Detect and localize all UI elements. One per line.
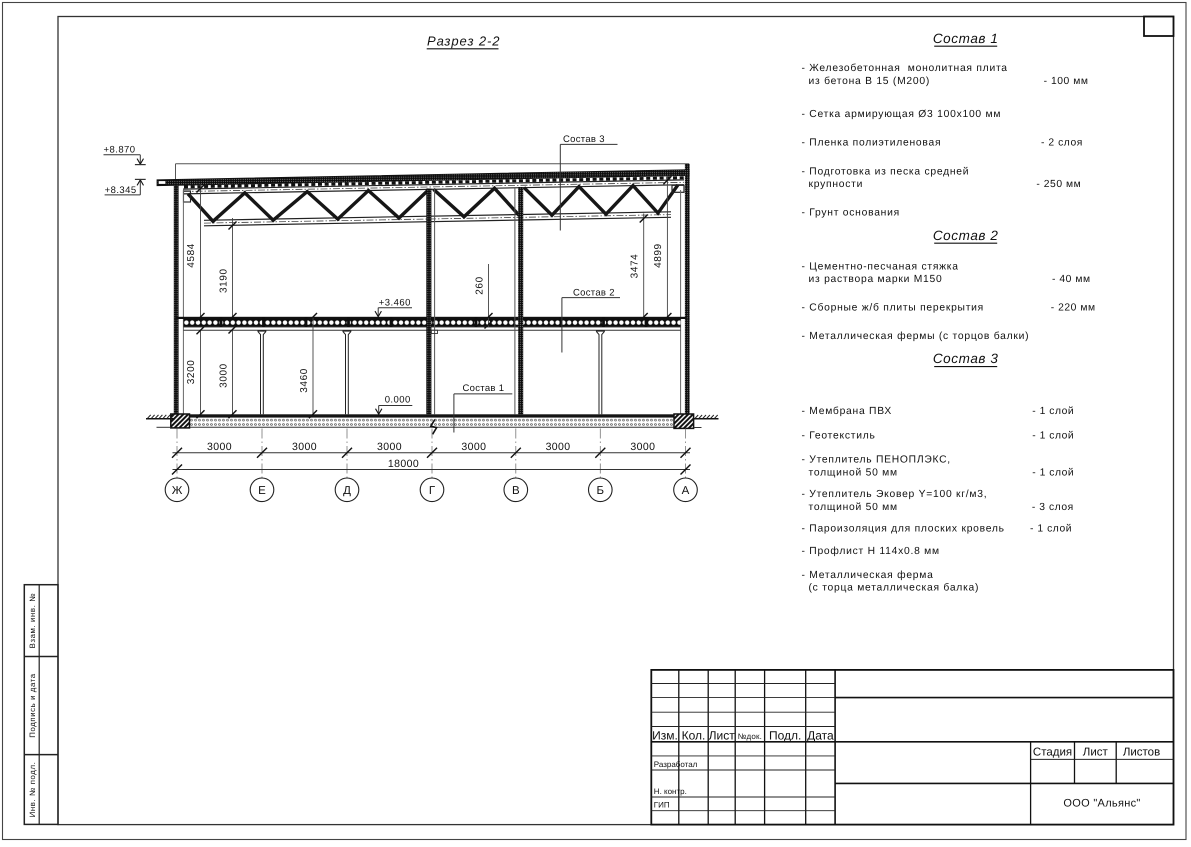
svg-text:0.000: 0.000 xyxy=(385,395,411,406)
svg-text:Кол.: Кол. xyxy=(682,728,706,742)
svg-text:Изм.: Изм. xyxy=(652,728,678,742)
svg-text:Разрез 2-2: Разрез 2-2 xyxy=(427,34,500,49)
svg-text:крупности: крупности xyxy=(809,179,864,190)
svg-text:Лист: Лист xyxy=(709,728,736,742)
svg-text:- 100 мм: - 100 мм xyxy=(1044,76,1089,87)
svg-text:Состав 1: Состав 1 xyxy=(463,383,505,394)
svg-text:- Сборные ж/б плиты перекрытия: - Сборные ж/б плиты перекрытия xyxy=(802,303,985,314)
svg-text:Состав 1: Состав 1 xyxy=(933,31,999,46)
svg-text:+3.460: +3.460 xyxy=(379,298,411,309)
svg-text:18000: 18000 xyxy=(388,458,419,470)
svg-text:3000: 3000 xyxy=(461,441,486,453)
svg-text:- Металлическая фермы (с торцо: - Металлическая фермы (с торцов балки) xyxy=(802,331,1030,342)
svg-text:3000: 3000 xyxy=(546,441,571,453)
svg-text:Инв. № подл.: Инв. № подл. xyxy=(28,762,37,818)
svg-text:3460: 3460 xyxy=(299,368,310,393)
svg-text:- Утеплитель Эковер Y=100 кг/м: - Утеплитель Эковер Y=100 кг/м3, xyxy=(802,489,988,500)
svg-text:А: А xyxy=(682,485,690,497)
svg-text:- Утеплитель ПЕНОПЛЭКС,: - Утеплитель ПЕНОПЛЭКС, xyxy=(802,455,951,466)
svg-text:- 220 мм: - 220 мм xyxy=(1051,303,1096,314)
svg-text:3200: 3200 xyxy=(186,360,197,385)
svg-text:Б: Б xyxy=(597,485,605,497)
svg-text:- Мембрана ПВХ: - Мембрана ПВХ xyxy=(802,406,892,417)
svg-text:толщиной 50 мм: толщиной 50 мм xyxy=(809,502,898,513)
svg-text:3000: 3000 xyxy=(630,441,655,453)
svg-text:- 1 слой: - 1 слой xyxy=(1032,430,1074,441)
svg-text:3000: 3000 xyxy=(218,363,229,388)
svg-text:Г: Г xyxy=(429,485,436,497)
svg-text:Состав 2: Состав 2 xyxy=(573,287,615,298)
svg-text:Н. контр.: Н. контр. xyxy=(654,787,687,796)
svg-text:3190: 3190 xyxy=(218,268,229,293)
svg-text:- Подготовка из песка средней: - Подготовка из песка средней xyxy=(802,166,970,177)
svg-text:ООО "Альянс": ООО "Альянс" xyxy=(1063,798,1140,810)
svg-text:Ж: Ж xyxy=(172,485,183,497)
svg-text:Листов: Листов xyxy=(1123,747,1160,759)
svg-text:Стадия: Стадия xyxy=(1033,747,1072,759)
svg-text:- Железобетонная монолитная п: - Железобетонная монолитная плита xyxy=(802,63,1008,74)
svg-text:Взам. инв. №: Взам. инв. № xyxy=(28,593,37,649)
svg-text:В: В xyxy=(512,485,520,497)
svg-text:3000: 3000 xyxy=(292,441,317,453)
svg-text:4584: 4584 xyxy=(186,243,197,268)
svg-text:4899: 4899 xyxy=(653,243,664,268)
svg-text:Состав 3: Состав 3 xyxy=(933,351,999,366)
svg-text:+8.870: +8.870 xyxy=(104,145,136,156)
svg-text:- Сетка армирующая Ø3 100х100: - Сетка армирующая Ø3 100х100 мм xyxy=(802,109,1002,120)
svg-text:- 1 слой: - 1 слой xyxy=(1032,406,1074,417)
svg-text:3000: 3000 xyxy=(207,441,232,453)
svg-text:260: 260 xyxy=(475,276,486,295)
svg-text:- Профлист Н 114х0.8 мм: - Профлист Н 114х0.8 мм xyxy=(802,546,940,557)
svg-text:- Металлическая ферма: - Металлическая ферма xyxy=(802,570,934,581)
svg-text:ГИП: ГИП xyxy=(654,800,670,809)
svg-text:Состав 3: Состав 3 xyxy=(563,134,605,145)
svg-text:- Геотекстиль: - Геотекстиль xyxy=(802,430,876,441)
svg-text:Разработал: Разработал xyxy=(654,760,698,769)
svg-text:толщиной 50 мм: толщиной 50 мм xyxy=(809,467,898,478)
svg-text:из бетона В 15 (М200): из бетона В 15 (М200) xyxy=(809,76,931,87)
svg-text:- 1 слой: - 1 слой xyxy=(1030,524,1072,535)
svg-text:- 250 мм: - 250 мм xyxy=(1036,179,1081,190)
svg-text:из раствора марки М150: из раствора марки М150 xyxy=(809,274,943,285)
svg-text:3000: 3000 xyxy=(377,441,402,453)
svg-text:- Пароизоляция для плоских кро: - Пароизоляция для плоских кровель xyxy=(802,524,1005,535)
svg-text:3474: 3474 xyxy=(630,254,641,279)
svg-text:Д: Д xyxy=(343,485,351,497)
svg-text:(с торца металлическая балка): (с торца металлическая балка) xyxy=(809,583,980,594)
svg-text:- 40 мм: - 40 мм xyxy=(1052,274,1091,285)
svg-text:Состав 2: Состав 2 xyxy=(933,228,999,243)
svg-text:- 3 слоя: - 3 слоя xyxy=(1032,502,1074,513)
svg-text:- Цементно-песчаная стяжка: - Цементно-песчаная стяжка xyxy=(802,261,959,272)
svg-text:Дата: Дата xyxy=(807,728,834,742)
svg-text:- 2 слоя: - 2 слоя xyxy=(1041,138,1083,149)
svg-text:Подл.: Подл. xyxy=(769,728,801,742)
svg-text:Е: Е xyxy=(258,485,266,497)
svg-text:№док.: №док. xyxy=(738,732,762,741)
svg-text:- Пленка полиэтиленовая: - Пленка полиэтиленовая xyxy=(802,138,942,149)
svg-text:- 1 слой: - 1 слой xyxy=(1032,467,1074,478)
svg-text:Подпись и дата: Подпись и дата xyxy=(28,673,37,738)
svg-text:- Грунт основания: - Грунт основания xyxy=(802,208,900,219)
svg-text:Лист: Лист xyxy=(1083,747,1109,759)
